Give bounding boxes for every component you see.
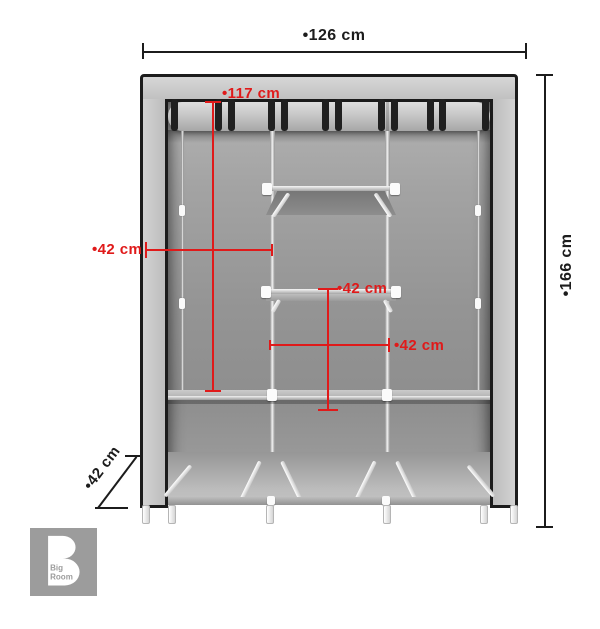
wardrobe-top-cover: [140, 74, 518, 102]
curtain-strap: [427, 99, 434, 131]
curtain-strap: [268, 99, 275, 131]
wardrobe-foot: [510, 505, 518, 524]
wardrobe-foot: [383, 505, 391, 524]
wardrobe-right-panel: [490, 99, 518, 508]
curtain-strap: [281, 99, 288, 131]
depth-cap: [125, 455, 140, 457]
wardrobe-foot: [168, 505, 176, 524]
middle-width-cap: [269, 340, 271, 350]
wardrobe-left-panel: [140, 99, 168, 508]
depth-label: •42 cm: [81, 443, 123, 492]
curtain-strap: [439, 99, 446, 131]
height-dimension-cap: [536, 74, 553, 76]
rail-height-line: [212, 102, 214, 392]
left-section-cap: [271, 244, 273, 256]
curtain-strap: [335, 99, 342, 131]
height-dimension-label: •166 cm: [559, 234, 575, 297]
pole-clip: [475, 205, 481, 216]
pole-clip: [475, 298, 481, 309]
width-dimension-line: [142, 51, 527, 53]
middle-height-label: •42 cm: [337, 281, 387, 296]
tube-connector: [382, 496, 390, 505]
logo-b-mark: Big Room: [30, 528, 97, 596]
depth-cap: [95, 507, 128, 509]
width-dimension-label: •126 cm: [303, 28, 366, 44]
middle-height-cap: [318, 409, 338, 411]
rail-height-cap: [205, 390, 221, 392]
width-dimension-cap: [525, 43, 527, 59]
height-dimension-line: [544, 75, 546, 527]
wardrobe-foot: [142, 505, 150, 524]
curtain-strap: [228, 99, 235, 131]
full-width-shelf-shadow: [168, 400, 490, 404]
tube-connector: [262, 183, 272, 195]
height-dimension-cap: [536, 526, 553, 528]
tube-connector: [267, 389, 277, 401]
left-section-label: •42 cm: [92, 242, 138, 257]
pole-clip: [179, 298, 185, 309]
rail-height-cap: [205, 101, 221, 103]
wardrobe-foot: [266, 505, 274, 524]
tube-connector: [390, 183, 400, 195]
tube-connector: [261, 286, 271, 298]
middle-width-line: [269, 344, 389, 346]
curtain-segment-gap: [386, 102, 389, 131]
width-dimension-cap: [142, 43, 144, 59]
tube-connector: [267, 496, 275, 505]
tube-connector: [382, 389, 392, 401]
side-pole-left: [181, 131, 184, 392]
tube-connector: [391, 286, 401, 298]
wardrobe-interior: [168, 99, 490, 505]
shelf-rail-tube: [266, 186, 396, 191]
brand-logo: Big Room: [30, 528, 97, 596]
curtain-strap: [378, 99, 385, 131]
middle-height-cap: [318, 288, 338, 290]
curtain-roll-shadow: [168, 130, 490, 143]
curtain-strap: [391, 99, 398, 131]
side-pole-right: [477, 131, 480, 392]
curtain-strap: [215, 99, 222, 131]
pole-clip: [179, 205, 185, 216]
wardrobe-floor-front-edge: [168, 497, 490, 505]
curtain-strap: [171, 99, 178, 131]
product-dimension-diagram: •126 cm •166 cm •117 cm •42 cm •42 cm •4…: [0, 0, 600, 629]
middle-height-line: [327, 289, 329, 411]
rail-height-label: •117 cm: [222, 86, 280, 101]
wardrobe-foot: [480, 505, 488, 524]
middle-width-label: •42 cm: [394, 338, 444, 353]
curtain-strap: [322, 99, 329, 131]
curtain-strap: [482, 99, 489, 131]
logo-text-line2: Room: [50, 572, 73, 581]
left-section-line: [146, 249, 272, 251]
logo-text-line1: Big: [50, 564, 63, 573]
middle-width-cap: [388, 338, 390, 352]
left-section-cap: [145, 242, 147, 258]
